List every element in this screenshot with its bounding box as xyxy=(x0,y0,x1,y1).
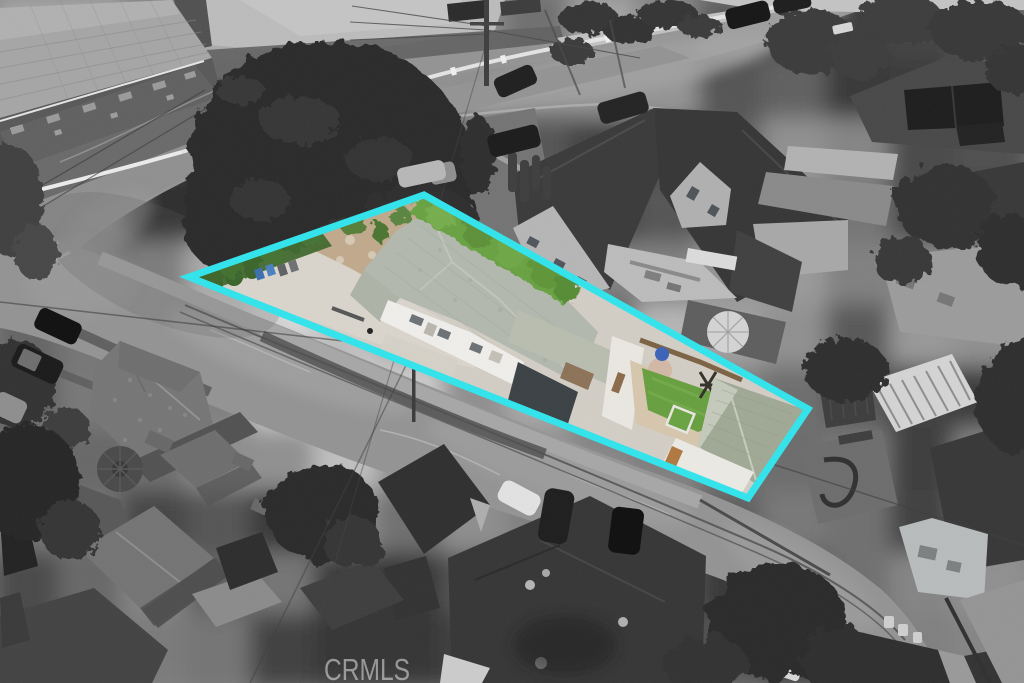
svg-text:CRMLS: CRMLS xyxy=(324,652,410,683)
